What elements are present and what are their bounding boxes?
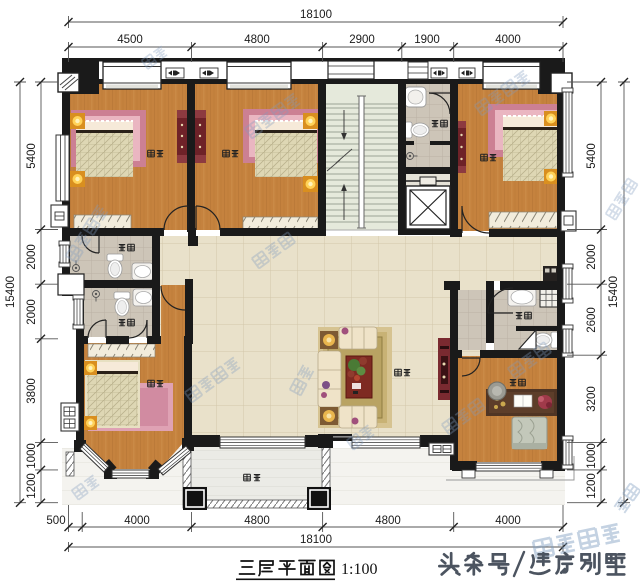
svg-text:2000: 2000 [26, 299, 38, 325]
svg-text:15400: 15400 [608, 276, 620, 308]
svg-text:4800: 4800 [244, 515, 270, 527]
svg-text:5400: 5400 [26, 143, 38, 169]
svg-text:4500: 4500 [117, 34, 143, 46]
svg-text:1200: 1200 [26, 473, 38, 499]
svg-text:2000: 2000 [26, 244, 38, 270]
svg-text:4000: 4000 [495, 34, 521, 46]
svg-text:4000: 4000 [495, 515, 521, 527]
svg-text:2000: 2000 [586, 244, 598, 270]
svg-text:15400: 15400 [5, 276, 17, 308]
svg-text:2900: 2900 [349, 34, 375, 46]
svg-text:1000: 1000 [586, 443, 598, 469]
svg-text:18100: 18100 [300, 534, 332, 546]
svg-text:500: 500 [46, 515, 65, 527]
svg-text:2600: 2600 [586, 307, 598, 333]
svg-text:1200: 1200 [586, 473, 598, 499]
svg-text:3800: 3800 [26, 378, 38, 404]
svg-text:18100: 18100 [300, 9, 332, 21]
svg-text:5400: 5400 [586, 143, 598, 169]
svg-text:1:100: 1:100 [341, 561, 377, 578]
svg-text:1900: 1900 [414, 34, 440, 46]
svg-text:4800: 4800 [244, 34, 270, 46]
svg-text:3200: 3200 [586, 386, 598, 412]
svg-text:4000: 4000 [124, 515, 150, 527]
svg-text:1000: 1000 [26, 443, 38, 469]
svg-text:4800: 4800 [375, 515, 401, 527]
